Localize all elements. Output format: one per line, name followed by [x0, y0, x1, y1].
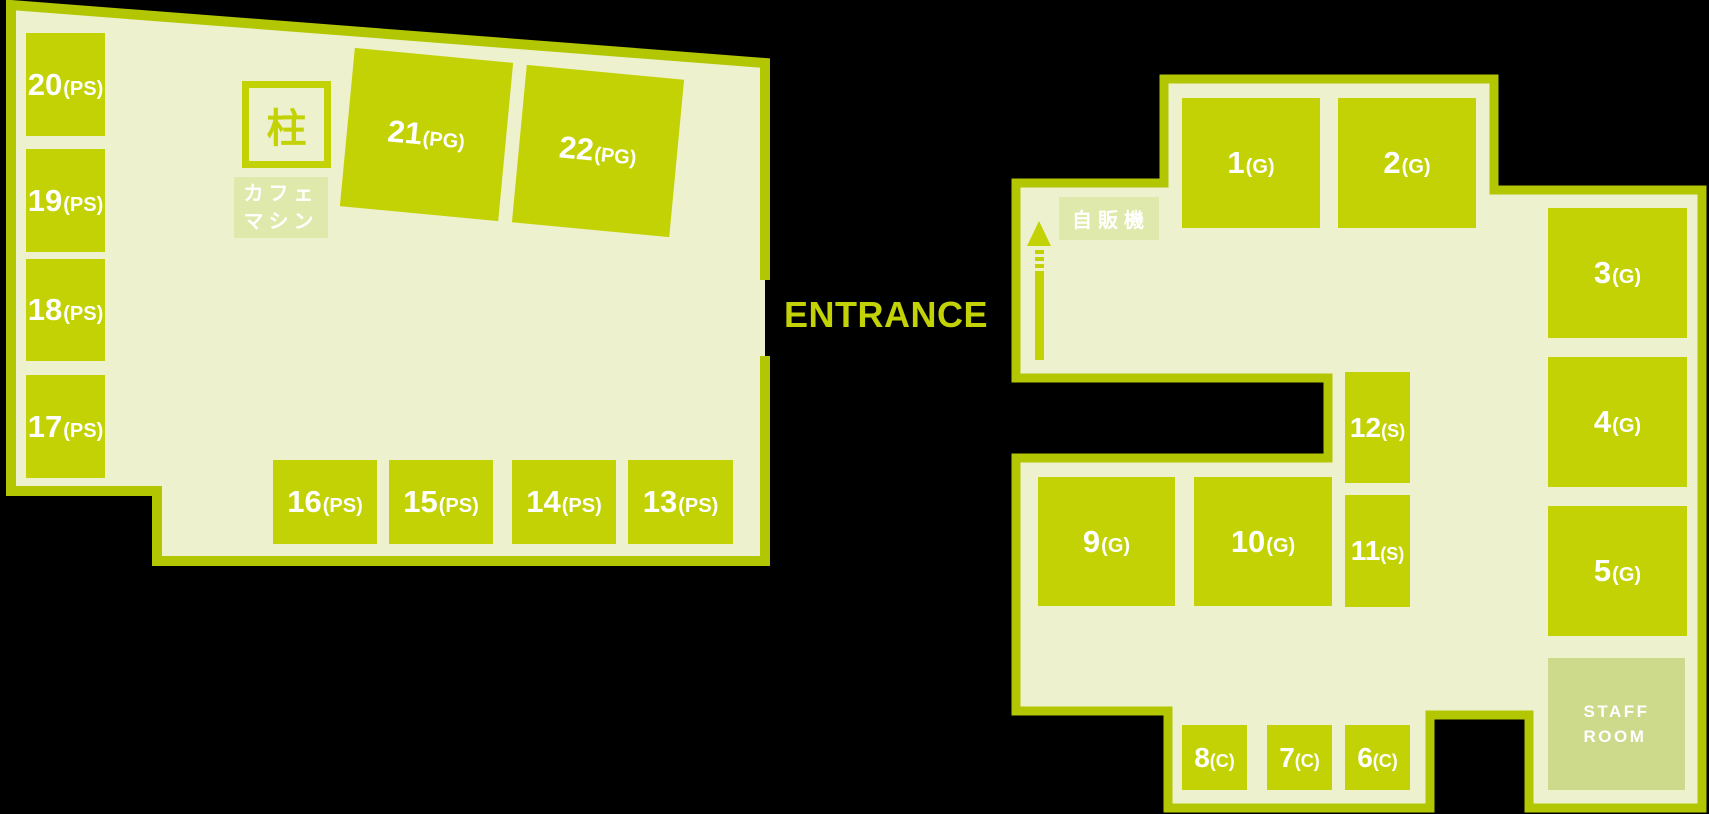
booth-14: 14(PS): [512, 460, 616, 544]
pillar-marker: 柱: [242, 81, 331, 168]
booth-label: 10(G): [1231, 524, 1295, 560]
booth-17: 17(PS): [26, 375, 105, 478]
booth-label: 13(PS): [643, 484, 718, 520]
booth-11: 11(S): [1345, 495, 1410, 607]
booth-label: 7(C): [1279, 742, 1320, 774]
booth-21: 21(PG): [340, 48, 513, 221]
booth-10: 10(G): [1194, 477, 1332, 606]
booth-12: 12(S): [1345, 372, 1410, 483]
booth-13: 13(PS): [628, 460, 733, 544]
booth-label: 11(S): [1351, 535, 1405, 567]
cafe-machine-area: カフェ マシン: [234, 177, 328, 238]
staff-room-area: STAFF ROOM: [1548, 658, 1685, 790]
booth-label: 20(PS): [28, 67, 103, 103]
booth-label: 21(PG): [386, 113, 467, 156]
pillar-label: 柱: [267, 96, 307, 154]
booth-3: 3(G): [1548, 208, 1687, 338]
booth-label: 1(G): [1227, 145, 1274, 181]
staff-room-label: STAFF ROOM: [1583, 699, 1649, 749]
booth-6: 6(C): [1345, 725, 1410, 790]
booth-label: 12(S): [1350, 412, 1405, 444]
booth-4: 4(G): [1548, 357, 1687, 487]
booth-16: 16(PS): [273, 460, 377, 544]
booth-19: 19(PS): [26, 149, 105, 252]
booth-5: 5(G): [1548, 506, 1687, 636]
booth-22: 22(PG): [512, 65, 684, 237]
cafe-machine-label-line2: マシン: [244, 208, 319, 236]
booth-15: 15(PS): [389, 460, 493, 544]
vending-machine-label: 自販機: [1072, 204, 1150, 233]
booth-20: 20(PS): [26, 33, 105, 136]
booth-label: 14(PS): [526, 484, 601, 520]
booth-label: 19(PS): [28, 183, 103, 219]
booth-label: 5(G): [1594, 553, 1641, 589]
booth-18: 18(PS): [26, 259, 105, 361]
booth-9: 9(G): [1038, 477, 1175, 606]
cafe-machine-label-line1: カフェ: [244, 180, 319, 208]
booth-label: 3(G): [1594, 255, 1641, 291]
booth-label: 16(PS): [287, 484, 362, 520]
booth-label: 4(G): [1594, 404, 1641, 440]
booth-2: 2(G): [1338, 98, 1476, 228]
booth-label: 18(PS): [28, 292, 103, 328]
booth-floor-map: ENTRANCE 20(PS) 19(PS) 18(PS) 17(PS) 21(…: [0, 0, 1709, 814]
booth-label: 17(PS): [28, 409, 103, 445]
booth-label: 2(G): [1383, 145, 1430, 181]
vending-machine-area: 自販機: [1059, 197, 1159, 240]
entrance-label: ENTRANCE: [762, 294, 1010, 336]
booth-7: 7(C): [1267, 725, 1332, 790]
booth-8: 8(C): [1182, 725, 1247, 790]
booth-label: 22(PG): [558, 129, 639, 172]
booth-1: 1(G): [1182, 98, 1320, 228]
booth-label: 8(C): [1194, 742, 1235, 774]
booth-label: 6(C): [1357, 742, 1398, 774]
booth-label: 9(G): [1083, 524, 1130, 560]
booth-label: 15(PS): [403, 484, 478, 520]
